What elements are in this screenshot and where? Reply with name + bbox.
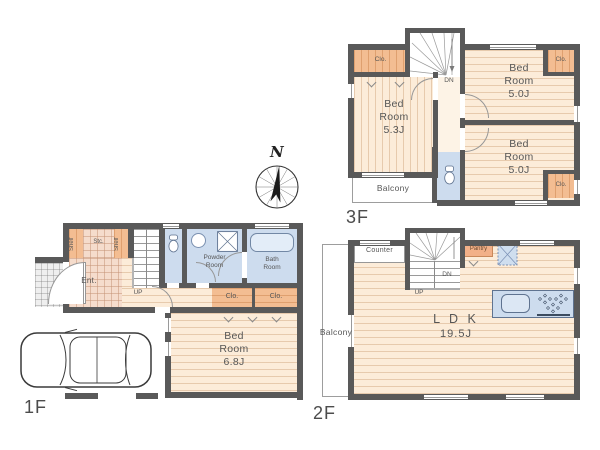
wall: [432, 147, 437, 203]
wall: [405, 28, 410, 77]
door-opening: [167, 283, 179, 288]
window: [515, 201, 547, 205]
stairs-rail: [434, 261, 435, 288]
stove-front-line: [537, 314, 570, 316]
kitchen-sink-icon: [501, 294, 530, 313]
room-label-bedroom-5-3j: Bed Room 5.3J: [356, 98, 432, 137]
wall: [348, 50, 354, 178]
door-opening: [196, 283, 209, 288]
shelf-label: Shelf: [69, 231, 83, 257]
room-label-bedroom-5-0j-top: Bed Room 5.0J: [463, 62, 575, 101]
room-label-ldk: L D K: [420, 312, 492, 328]
floor-label-2f: 2F: [313, 402, 353, 425]
door-opening: [242, 252, 247, 278]
wall: [405, 228, 465, 233]
wall: [159, 283, 303, 288]
wall: [136, 393, 158, 399]
wall: [159, 229, 165, 283]
window: [574, 338, 580, 354]
stairs-winder-3f: [410, 33, 460, 77]
wall: [574, 240, 580, 400]
stairs-dn-label: DN: [436, 271, 458, 279]
step-line: [132, 258, 134, 288]
toilet-icon: [443, 165, 456, 186]
wall: [170, 307, 303, 313]
bath-room-label: Bath Room: [251, 256, 293, 272]
entrance-label: Ent.: [74, 276, 104, 286]
compass-icon: [253, 160, 301, 214]
window: [165, 318, 171, 332]
stairs-dn-label: DN: [437, 77, 461, 85]
floor-label-3f: 3F: [346, 206, 386, 229]
room-label-bedroom-5-0j-bottom: Bed Room 5.0J: [463, 138, 575, 177]
wall: [65, 393, 98, 399]
wall: [63, 307, 155, 313]
stove-burners-icon: [536, 292, 570, 314]
wall: [348, 44, 410, 50]
refrigerator-space-icon: [497, 243, 518, 266]
counter-label: Counter: [354, 247, 405, 256]
compass-north-label: N: [266, 143, 288, 162]
closet-label: Clo.: [354, 56, 407, 64]
car-icon: [18, 328, 156, 392]
storage-label: Stc.: [83, 239, 114, 247]
wall: [182, 229, 187, 283]
powder-room-label: Powder Room: [188, 254, 241, 270]
wall: [165, 392, 303, 398]
wall: [437, 200, 580, 206]
wall: [405, 28, 465, 33]
stairs-up-label: UP: [408, 289, 430, 297]
window: [520, 241, 554, 245]
window: [424, 395, 468, 399]
bathtub-icon: [250, 233, 294, 252]
window: [362, 173, 404, 177]
wall: [348, 72, 410, 77]
wall: [348, 347, 354, 400]
closet-label: Clo.: [255, 293, 297, 302]
shelf-label: Shelf: [114, 231, 128, 257]
window: [574, 106, 580, 122]
window: [506, 395, 544, 399]
window: [574, 268, 580, 284]
wall: [348, 246, 354, 315]
window: [165, 342, 171, 356]
sink-icon: [191, 233, 206, 248]
wall: [405, 228, 410, 290]
balcony-label: Balcony: [318, 327, 354, 338]
room-label-ldk-size: 19.5J: [420, 328, 492, 342]
closet-label: Clo.: [548, 182, 574, 190]
pantry-label: Pantry: [464, 246, 493, 254]
window: [490, 45, 536, 49]
stairs-up-label: UP: [127, 289, 149, 297]
wall: [465, 120, 580, 125]
wall: [35, 257, 66, 263]
window: [255, 224, 289, 228]
room-label-bedroom-6-8j: Bed Room 6.8J: [174, 330, 294, 369]
window: [348, 84, 354, 98]
toilet-icon: [167, 234, 180, 254]
window: [163, 224, 179, 228]
stairs-winder-2f: [410, 233, 460, 261]
window: [360, 241, 390, 245]
window: [574, 180, 580, 194]
balcony-label: Balcony: [356, 183, 430, 194]
washer-icon: [217, 231, 238, 252]
balcony-2f: [322, 244, 349, 397]
floor-label-1f: 1F: [24, 396, 64, 419]
stairs-rail: [146, 229, 147, 288]
wall: [128, 229, 134, 258]
closet-label: Clo.: [212, 293, 252, 302]
floor-plan: Clo. Clo. Clo. Bed Room 5.3J Bed Room 5.…: [0, 0, 600, 450]
